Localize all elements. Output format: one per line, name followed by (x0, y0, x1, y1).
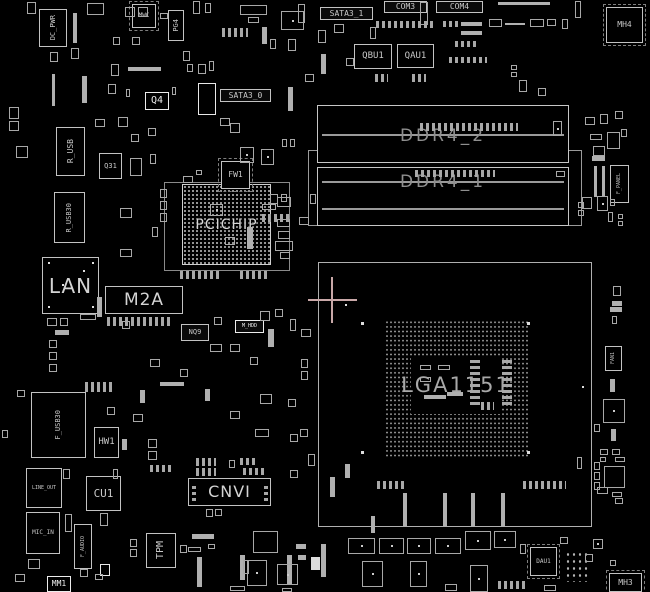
pcb-part (301, 371, 308, 380)
pcb-part (281, 11, 304, 30)
pcb-part (92, 262, 94, 264)
pcb-part (130, 158, 142, 176)
pcb-part (17, 390, 25, 397)
mh3-chip-label: MH3 (618, 579, 632, 587)
pcb-part (188, 547, 201, 552)
pg4-connector-label: PG4 (173, 19, 180, 32)
pcb-part (9, 107, 19, 119)
pcb-part (180, 271, 220, 279)
pcb-part (230, 123, 240, 133)
pcb-part (150, 359, 160, 367)
m-hdd-label-label: M_HDD (242, 324, 257, 329)
tpm-header[interactable]: TPM (146, 533, 176, 568)
line-out-jack[interactable]: LINE_OUT (26, 468, 62, 508)
pcb-part (150, 465, 173, 472)
pcb-part (260, 394, 272, 404)
pcb-part (122, 321, 130, 329)
pcb-part (268, 329, 274, 347)
pcb-part (403, 493, 407, 527)
pcb-part (498, 2, 550, 5)
hw1-component[interactable]: HW1 (94, 427, 119, 458)
dau1-chip[interactable]: DAU1 (530, 547, 557, 576)
pcb-part (443, 21, 461, 27)
pcb-part (470, 565, 488, 592)
pcb-part (120, 208, 132, 218)
pcb-part (50, 52, 58, 62)
pcb-part (225, 237, 235, 245)
pcb-part (582, 197, 592, 209)
pcb-part (183, 51, 190, 61)
pcb-part (597, 196, 608, 211)
pcb-part (253, 531, 278, 553)
nq9-component-label: NQ9 (189, 329, 202, 336)
pcb-part (209, 61, 214, 71)
pcb-part (578, 210, 584, 216)
sata3-1-port[interactable]: SATA3_1 (320, 7, 373, 20)
pcb-part (612, 449, 620, 455)
pcb-part (196, 468, 216, 476)
m2a-slot[interactable]: M2A (105, 286, 183, 314)
pcb-part (461, 31, 482, 35)
pcb-part (130, 549, 137, 557)
pcb-part (264, 483, 268, 501)
pcb-part (220, 118, 230, 126)
pcb-part (85, 382, 115, 392)
pcb-part (95, 119, 105, 127)
pcb-part (594, 166, 597, 197)
pcb-part (379, 538, 404, 554)
pcb-part (348, 538, 375, 554)
pcb-part (290, 139, 295, 147)
pcb-part (63, 469, 70, 479)
pcb-part (300, 429, 308, 437)
pcb-part (407, 538, 431, 554)
cu1-component-label: CU1 (94, 488, 114, 499)
pcb-part (250, 357, 258, 365)
pcb-part (290, 470, 298, 478)
pcb-part (502, 359, 512, 405)
f-panel-header[interactable]: F_PANEL (610, 165, 629, 203)
pcb-part (602, 166, 605, 197)
mic-in-jack[interactable]: MIC_IN (26, 512, 60, 554)
q4-component[interactable]: Q4 (145, 92, 169, 110)
r-usb30-port[interactable]: R_USB30 (54, 192, 85, 243)
r-usb-port-label: R_USB (67, 139, 75, 163)
pcb-part (247, 227, 253, 249)
qbu1-component-label: QBU1 (362, 52, 384, 61)
pcb-part (611, 429, 616, 441)
qbu1-component[interactable]: QBU1 (354, 44, 392, 69)
pcb-part (621, 129, 627, 137)
pcb-part (150, 154, 156, 164)
pcb-part (600, 114, 608, 124)
pcb-part (465, 531, 491, 550)
pcb-part (113, 469, 118, 479)
pcb-part (280, 252, 290, 259)
pcb-part (148, 451, 157, 460)
pcb-part (205, 3, 211, 13)
pcb-part (556, 171, 565, 177)
pcb-part (481, 402, 494, 410)
m-hdd-label[interactable]: M_HDD (235, 320, 264, 333)
pcb-part (260, 311, 270, 321)
mh3-chip[interactable]: MH3 (609, 573, 642, 592)
pcb-part (311, 557, 320, 570)
pcb-part (16, 146, 28, 158)
pcb-part (361, 322, 364, 325)
pcb-part (107, 407, 115, 415)
pcb-part (126, 89, 130, 97)
m2a-slot-label: M2A (124, 292, 164, 309)
pcb-part (361, 451, 364, 454)
pcb-part (277, 197, 291, 207)
pcb-part (415, 170, 495, 177)
pcb-part (308, 454, 315, 466)
f-audio-header-label: F_AUDIO (81, 536, 86, 557)
pcb-part (377, 481, 407, 489)
pcb-part (597, 487, 608, 494)
pcb-part (290, 434, 298, 442)
pcb-part (501, 493, 505, 527)
pcb-part (205, 389, 210, 401)
pcb-part (346, 58, 354, 66)
pcb-part (83, 270, 85, 272)
pcb-part (122, 439, 127, 450)
pcb-part (138, 7, 148, 17)
pcb-part (270, 39, 276, 49)
pcb-part (489, 19, 502, 27)
pcb-part (210, 344, 222, 352)
pcb-part (604, 466, 625, 488)
f-panel-header-label: F_PANEL (617, 173, 622, 194)
pcb-part (613, 286, 621, 296)
pcb-part (447, 392, 463, 396)
pcb-part (438, 365, 450, 370)
pcb-part (240, 5, 267, 15)
pcb-part (247, 560, 267, 586)
pcb-part (520, 544, 526, 554)
com4-header-label: COM4 (450, 3, 469, 11)
pcb-part (321, 54, 326, 74)
pcb-part (230, 411, 240, 419)
pcb-part (15, 574, 25, 582)
pcb-part (240, 458, 256, 465)
pcb-part (345, 464, 350, 478)
dimm-slot-line (322, 208, 564, 210)
pcb-part (612, 492, 622, 497)
pcb-part (610, 560, 616, 566)
mm1-component[interactable]: MM1 (47, 576, 71, 592)
pcb-part (371, 516, 375, 533)
pcb-part (618, 221, 623, 226)
cnvi-slot-label: CNVI (208, 484, 251, 500)
pcb-part (95, 574, 103, 580)
r-usb30-port-label: R_USB30 (66, 203, 73, 233)
pcb-part (240, 271, 270, 279)
pcb-part (160, 382, 184, 386)
pcb-part (288, 87, 293, 111)
pcb-part (470, 359, 480, 405)
pcb-part (73, 13, 77, 43)
pcb-part (111, 64, 119, 76)
pcb-boardview-diagram: DDR4_2 DDR4_1 LGA1151 PCICHIP DC_PWRMWCP… (0, 0, 650, 592)
f-usb30-connector-label: F_USB30 (55, 410, 62, 440)
pcb-part (193, 1, 200, 14)
pcb-part (113, 37, 120, 45)
pcb-part (208, 544, 215, 549)
pcb-part (298, 555, 306, 560)
pcb-part (261, 149, 274, 165)
pcb-part (445, 584, 457, 591)
pcb-part (494, 531, 516, 548)
mh4-chip[interactable]: MH4 (606, 7, 643, 43)
pcb-part (87, 3, 104, 15)
pcb-part (248, 17, 259, 23)
pcb-part (160, 13, 168, 19)
pcb-part (55, 330, 69, 335)
pcb-part (318, 30, 326, 43)
pcb-part (592, 156, 605, 161)
pcb-part (362, 561, 383, 587)
crosshair-marker-vertical (331, 277, 333, 323)
q31-component[interactable]: Q31 (99, 153, 122, 179)
pcb-part (594, 472, 600, 480)
cu1-component[interactable]: CU1 (86, 476, 121, 511)
pcb-part (608, 212, 613, 222)
pcb-part (118, 117, 128, 127)
pcb-part (593, 146, 605, 156)
mm1-component-label: MM1 (52, 580, 66, 588)
nq9-component[interactable]: NQ9 (181, 324, 209, 341)
f-usb30-connector[interactable]: F_USB30 (31, 392, 86, 458)
pcb-part (299, 217, 309, 225)
pcb-part (593, 539, 603, 549)
pcb-part (196, 170, 202, 175)
pcb-part (612, 316, 617, 324)
pcb-part (600, 457, 606, 462)
pcb-part (590, 134, 602, 140)
pcb-part (255, 429, 269, 437)
pcb-part (615, 111, 623, 119)
pcb-part (582, 386, 584, 388)
pcb-part (301, 359, 308, 368)
pcb-part (62, 284, 64, 286)
pcb-part (498, 581, 526, 589)
qau1-component-label: QAU1 (405, 52, 427, 61)
pcb-part (585, 554, 593, 562)
sata3-1-port-label: SATA3_1 (330, 10, 364, 18)
pcb-part (290, 319, 296, 331)
pcichip-bga[interactable]: PCICHIP (182, 184, 271, 265)
pcb-part (229, 460, 235, 468)
pcb-part (140, 390, 145, 403)
pcb-part (618, 214, 623, 219)
pcb-part (562, 19, 568, 29)
pcb-part (222, 28, 248, 37)
pcb-part (148, 439, 157, 448)
pcb-part (49, 364, 57, 372)
pcb-part (288, 39, 296, 51)
pcb-part (160, 201, 167, 210)
hw1-component-label: HW1 (98, 438, 114, 447)
pcb-part (376, 21, 434, 28)
pcb-part (100, 513, 108, 526)
pcb-part (310, 194, 316, 204)
pcb-part (107, 317, 171, 326)
pcb-part (615, 498, 623, 504)
pcb-part (132, 37, 140, 45)
pcb-part (160, 213, 167, 222)
pcb-part (180, 545, 187, 553)
pcb-part (461, 22, 482, 26)
pcb-part (424, 395, 446, 399)
pcb-part (527, 322, 530, 325)
pcb-part (214, 317, 222, 325)
pcb-part (230, 344, 240, 352)
pcb-part (278, 231, 290, 239)
pcb-part (603, 399, 625, 423)
pcb-part (420, 123, 518, 131)
pcb-part (243, 560, 249, 574)
pcb-part (410, 561, 427, 587)
pcb-part (192, 534, 214, 539)
pcb-part (527, 451, 530, 454)
pcb-part (125, 7, 135, 17)
pcb-part (334, 24, 344, 33)
pcb-part (575, 1, 581, 18)
pcb-part (275, 309, 283, 317)
dau1-chip-label: DAU1 (536, 559, 550, 565)
com4-header[interactable]: COM4 (436, 1, 483, 13)
pcb-part (505, 23, 525, 25)
fw1-chip-label: FW1 (228, 171, 242, 179)
pcb-part (128, 67, 161, 71)
pcb-part (412, 74, 426, 82)
pcb-part (330, 477, 335, 497)
pcb-part (180, 369, 188, 377)
pcb-part (420, 377, 431, 382)
pcb-part (160, 189, 167, 198)
pcb-part (183, 176, 193, 183)
pcb-part (97, 297, 102, 317)
pcb-part (197, 557, 202, 587)
pcb-part (52, 74, 55, 106)
pcb-part (511, 65, 517, 70)
pcb-part (71, 48, 79, 59)
pcb-part (92, 306, 94, 308)
r-usb-port[interactable]: R_USB (56, 127, 85, 176)
pcb-part (48, 306, 50, 308)
lan-port[interactable]: LAN (42, 257, 99, 314)
pcb-part (435, 538, 461, 554)
fan1-header[interactable]: FAN1 (605, 346, 622, 371)
pcb-part (60, 318, 68, 326)
mic-in-jack-label: MIC_IN (32, 530, 54, 536)
pcb-part (198, 64, 206, 74)
pcb-part (48, 262, 50, 264)
pcb-part (443, 493, 447, 527)
pcb-part (282, 139, 287, 147)
pcb-part (198, 83, 216, 115)
pcb-part (519, 80, 527, 92)
pcb-part (262, 27, 267, 44)
pcb-part (296, 544, 306, 549)
pcb-part (192, 483, 196, 501)
pcb-part (131, 134, 139, 142)
pcb-part (449, 57, 487, 63)
pcb-part (152, 227, 158, 237)
pcb-part (49, 340, 57, 348)
pcb-part (538, 88, 546, 96)
pcb-part (196, 458, 216, 466)
cnvi-slot[interactable]: CNVI (188, 478, 271, 506)
dimm-slot-ddr4-2[interactable]: DDR4_2 (317, 105, 569, 163)
pcb-part (610, 307, 622, 312)
pcb-part (172, 87, 176, 95)
pcb-part (301, 329, 311, 337)
pcb-part (594, 424, 600, 432)
pcb-part (612, 301, 622, 306)
pcb-part (275, 241, 293, 251)
tpm-header-label: TPM (156, 541, 166, 559)
pcb-part (610, 199, 615, 206)
pcb-part (577, 457, 582, 469)
pcb-part (547, 19, 556, 26)
pcb-part (240, 147, 254, 163)
dc-pwr-connector[interactable]: DC_PWR (39, 9, 67, 47)
pcb-part (553, 121, 562, 136)
pcb-part (262, 204, 276, 210)
pcb-part (544, 585, 556, 591)
pcb-part (471, 493, 475, 527)
q31-component-label: Q31 (104, 163, 117, 170)
pcb-part (282, 588, 292, 592)
fw1-chip[interactable]: FW1 (221, 161, 250, 189)
pcb-part (600, 449, 608, 455)
pcb-part (455, 41, 479, 47)
pcb-part (375, 74, 388, 82)
pcb-part (133, 414, 143, 422)
qau1-component[interactable]: QAU1 (397, 44, 434, 68)
pcb-part (420, 365, 431, 370)
com3-header-label: COM3 (396, 3, 415, 11)
pcb-part (206, 509, 213, 517)
pcb-part (49, 352, 57, 360)
pcb-part (47, 318, 57, 326)
pcb-part (607, 132, 620, 149)
pcb-part (560, 537, 568, 544)
pcb-part (80, 314, 96, 320)
pg4-connector[interactable]: PG4 (168, 10, 184, 41)
f-audio-header[interactable]: F_AUDIO (74, 524, 92, 569)
q4-component-label: Q4 (151, 96, 163, 106)
pcb-part (345, 304, 347, 306)
sata3-0-port[interactable]: SATA3_0 (220, 89, 271, 102)
pcb-part (130, 539, 137, 547)
pcb-part (80, 569, 88, 577)
pcb-part (65, 514, 72, 532)
pcb-part (108, 84, 116, 94)
pcb-part (120, 249, 132, 257)
pcb-part (243, 468, 265, 475)
pcb-part (615, 457, 625, 462)
pcb-part (305, 74, 314, 82)
pcb-part (9, 121, 19, 131)
pcb-part (2, 430, 8, 438)
line-out-jack-label: LINE_OUT (32, 486, 56, 491)
pcb-part (511, 72, 517, 77)
pcb-part (288, 399, 296, 407)
